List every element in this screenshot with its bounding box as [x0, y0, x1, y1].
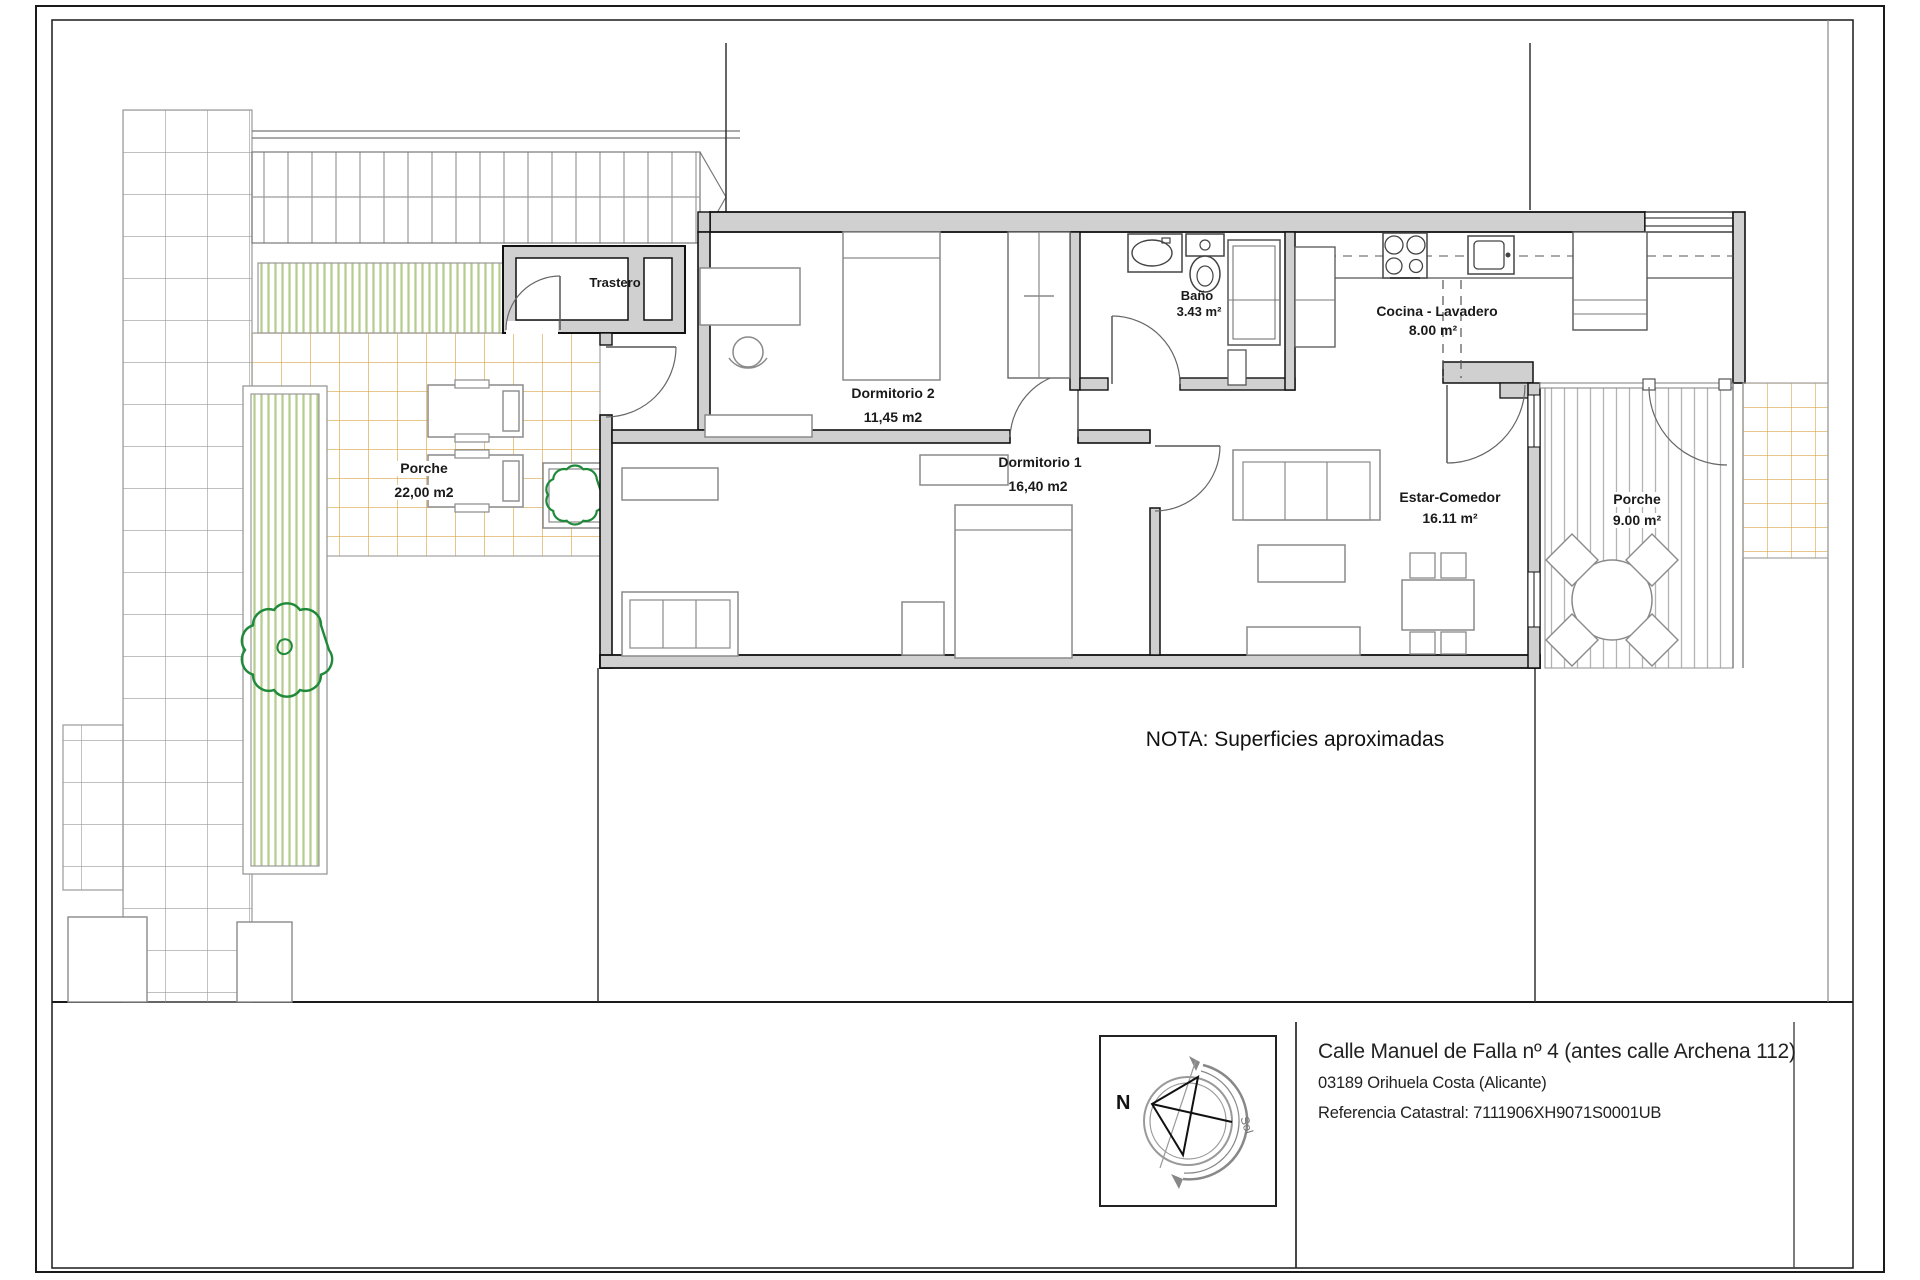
wardrobe	[1008, 232, 1070, 378]
sofa	[1233, 450, 1380, 520]
bed	[955, 505, 1072, 658]
bedroom1-furniture	[622, 455, 1072, 658]
wall-right-top	[1733, 212, 1745, 383]
stove-icon	[1383, 233, 1427, 278]
nightstand	[902, 602, 944, 655]
floor-plan-drawing	[0, 0, 1920, 1280]
wall-mid-right	[1078, 430, 1150, 443]
desk	[700, 268, 800, 325]
entry-door-arc	[606, 347, 676, 417]
address-line-2: 03189 Orihuela Costa (Alicante)	[1318, 1074, 1547, 1093]
sidewalk-tiles	[123, 110, 252, 1002]
address-line-1: Calle Manuel de Falla nº 4 (antes calle …	[1318, 1040, 1796, 1064]
kitchen-cabinet-left	[1295, 247, 1335, 347]
garden-box-right	[237, 922, 292, 1002]
address-line-3: Referencia Catastral: 7111906XH9071S0001…	[1318, 1104, 1661, 1123]
wall-top	[710, 212, 1645, 232]
bench-sofa	[622, 592, 738, 656]
wall-left	[600, 415, 612, 668]
room-label-dormitorio2: Dormitorio 2	[851, 386, 934, 401]
green-strip-top	[258, 263, 503, 333]
coffee-table	[1258, 545, 1345, 582]
garden-patio	[242, 263, 607, 874]
wall-dorm2-left	[698, 232, 710, 430]
bath-cabinet	[1228, 240, 1280, 385]
tv-board	[1247, 627, 1360, 655]
note-superficies: NOTA: Superficies aproximadas	[1146, 728, 1444, 752]
room-area-bano: 3.43 m²	[1177, 305, 1222, 319]
room-label-trastero: Trastero	[589, 276, 640, 290]
room-area-dormitorio1: 16,40 m2	[1008, 479, 1067, 494]
window-top	[1645, 212, 1733, 232]
planter-green	[251, 394, 319, 866]
bed	[843, 232, 940, 380]
wall-dorm1-estar	[1150, 508, 1160, 655]
sun-lounger	[428, 380, 523, 442]
room-label-porche-izq: Porche	[395, 461, 452, 476]
room-label-estar: Estar-Comedor	[1399, 490, 1500, 505]
dorm2-door-arc	[1010, 372, 1078, 437]
toilet-icon	[1186, 234, 1224, 292]
room-area-estar: 16.11 m²	[1422, 511, 1477, 526]
dining-set	[1402, 553, 1474, 654]
tree-planter-box	[543, 463, 607, 528]
room-area-cocina: 8.00 m²	[1409, 323, 1457, 338]
room-label-porche-der: Porche	[1608, 492, 1665, 507]
living-furniture	[1233, 450, 1474, 655]
room-label-dormitorio1: Dormitorio 1	[998, 455, 1081, 470]
right-porch	[1540, 379, 1828, 668]
bath-door-arc	[1112, 316, 1180, 384]
room-area-porche-der: 9.00 m²	[1608, 513, 1666, 528]
wall-kitchen-stub	[1443, 362, 1533, 383]
shelf	[920, 455, 1008, 485]
dresser	[622, 468, 718, 500]
sink-icon	[1468, 236, 1514, 274]
bedroom2-furniture	[700, 232, 1070, 437]
neighbor-patio-tiles	[1743, 383, 1828, 558]
room-area-porche-izq: 22,00 m2	[389, 485, 458, 500]
sidewalk-tiles-notch	[63, 725, 123, 890]
room-label-bano: Baño	[1181, 289, 1214, 303]
garden-box-left	[68, 917, 147, 1002]
room-label-cocina: Cocina - Lavadero	[1376, 304, 1497, 319]
dorm1-door-arc	[1155, 446, 1220, 511]
floor-plan-page: Trastero Baño 3.43 m² Cocina - Lavadero …	[0, 0, 1920, 1280]
room-area-dormitorio2: 11,45 m2	[864, 410, 922, 425]
compass-north-label: N	[1116, 1092, 1130, 1115]
fridge-cupboard	[1573, 232, 1647, 330]
kitchen-fixtures	[1295, 232, 1733, 378]
dresser	[705, 415, 812, 437]
wall-bath-left	[1070, 232, 1080, 390]
wall-bath-right	[1285, 232, 1295, 390]
chair-icon	[733, 337, 763, 367]
